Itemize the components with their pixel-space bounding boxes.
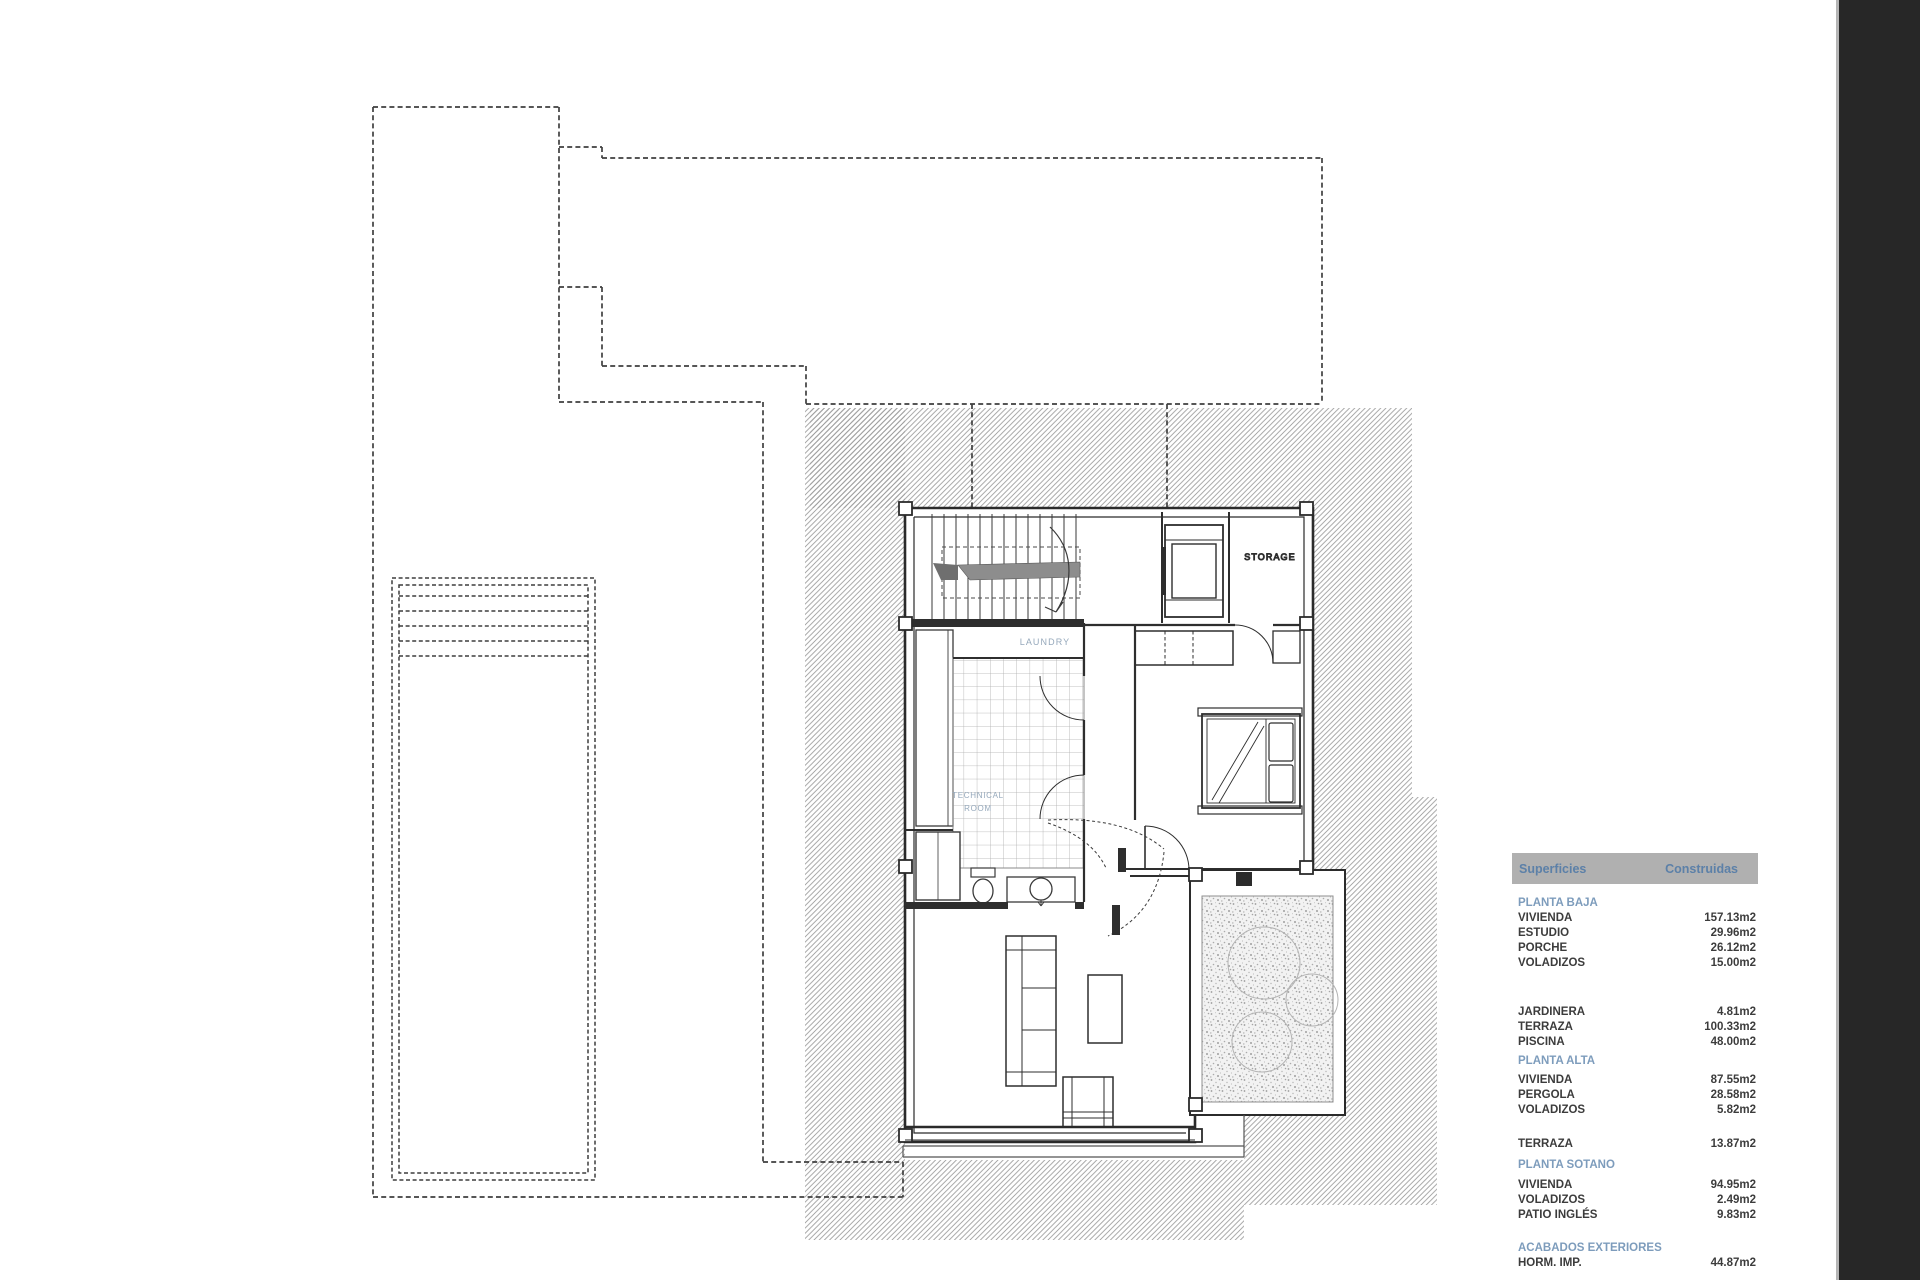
surfaces-table: Superficies Construidas PLANTA BAJA VIVI… bbox=[1512, 853, 1758, 1271]
table-row: PATIO INGLÉS9.83m2 bbox=[1512, 1208, 1758, 1223]
table-row: ESTUDIO29.96m2 bbox=[1512, 926, 1758, 941]
stair-shelf bbox=[958, 562, 1080, 580]
surfaces-table-rows: PLANTA BAJA VIVIENDA157.13m2 ESTUDIO29.9… bbox=[1512, 884, 1758, 1271]
terrace-post bbox=[1236, 872, 1252, 886]
table-row: HORM. IMP.44.87m2 bbox=[1512, 1256, 1758, 1271]
table-row: VOLADIZOS15.00m2 bbox=[1512, 956, 1758, 971]
table-section-header: PLANTA BAJA bbox=[1512, 896, 1758, 911]
table-section-header: PLANTA ALTA bbox=[1512, 1054, 1758, 1069]
technical-room-label-line1: TECHNICAL bbox=[952, 791, 1004, 800]
table-row: VOLADIZOS5.82m2 bbox=[1512, 1103, 1758, 1118]
table-row: VIVIENDA157.13m2 bbox=[1512, 911, 1758, 926]
pool bbox=[392, 578, 595, 1180]
table-row: VIVIENDA87.55m2 bbox=[1512, 1073, 1758, 1088]
table-row: PORCHE26.12m2 bbox=[1512, 941, 1758, 956]
table-row: PISCINA48.00m2 bbox=[1512, 1035, 1758, 1050]
table-row: VIVIENDA94.95m2 bbox=[1512, 1178, 1758, 1193]
stair-bottom-wall bbox=[905, 619, 1084, 627]
right-dark-strip bbox=[1839, 0, 1920, 1280]
surfaces-header-col2: Construidas bbox=[1665, 862, 1738, 876]
table-row: VOLADIZOS2.49m2 bbox=[1512, 1193, 1758, 1208]
storage-label: STORAGE bbox=[1244, 552, 1296, 562]
table-row: TERRAZA13.87m2 bbox=[1512, 1137, 1758, 1152]
table-row: JARDINERA4.81m2 bbox=[1512, 1005, 1758, 1020]
table-row: TERRAZA100.33m2 bbox=[1512, 1020, 1758, 1035]
technical-room-label-line2: ROOM bbox=[964, 804, 992, 813]
tiled-floor bbox=[953, 658, 1084, 868]
terrace bbox=[1190, 870, 1345, 1115]
table-section-header: PLANTA SOTANO bbox=[1512, 1158, 1758, 1173]
surfaces-table-header: Superficies Construidas bbox=[1512, 853, 1758, 884]
table-section-header: ACABADOS EXTERIORES bbox=[1512, 1241, 1758, 1256]
table-row: PERGOLA28.58m2 bbox=[1512, 1088, 1758, 1103]
surfaces-header-col1: Superficies bbox=[1519, 862, 1586, 876]
laundry-label: LAUNDRY bbox=[1020, 637, 1071, 647]
